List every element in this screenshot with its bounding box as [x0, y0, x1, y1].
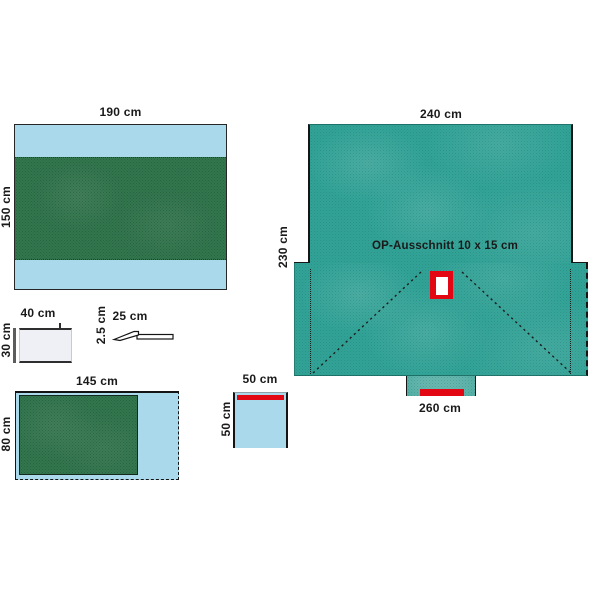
drape-set-diagram: 190 cm 150 cm 40 cm 30 cm 25 cm 2.5 cm 1… — [0, 0, 600, 600]
large-drape-bottom-tab — [406, 376, 476, 396]
fenestration — [430, 271, 453, 299]
cutout-label: OP-Ausschnitt 10 x 15 cm — [325, 239, 565, 253]
large-drape-step-edge-right — [572, 262, 588, 264]
drape-190-width-label: 190 cm — [14, 105, 227, 119]
large-drape-height-label: 230 cm — [276, 217, 290, 277]
drape-145 — [15, 391, 179, 480]
drape-145-reinforcement-zone — [19, 395, 138, 475]
pad-height-label: 30 cm — [0, 310, 13, 370]
small-drape-height-label: 50 cm — [219, 389, 233, 449]
fold-line-right — [570, 269, 571, 374]
absorbent-pad — [19, 328, 72, 363]
fold-line-left — [310, 269, 311, 374]
tape-body — [137, 335, 173, 340]
tape-height-label: 2.5 cm — [94, 295, 108, 355]
tape-folded-end — [114, 332, 139, 341]
fenestration-opening — [436, 277, 448, 295]
drape-145-width-label: 145 cm — [37, 374, 157, 388]
small-drape — [233, 392, 288, 448]
small-drape-adhesive-bar — [237, 395, 284, 400]
large-drape-step-edge-left — [294, 262, 309, 264]
tape-strip — [110, 326, 175, 343]
large-drape-width-label: 240 cm — [341, 107, 541, 121]
pad-dimension-bar — [13, 328, 16, 363]
drape-190 — [14, 124, 227, 290]
pad-width-label: 40 cm — [8, 306, 68, 320]
pad-tick-mark — [59, 323, 61, 329]
tape-width-label: 25 cm — [100, 309, 160, 323]
drape-145-height-label: 80 cm — [0, 404, 13, 464]
bottom-tab-adhesive-bar — [420, 389, 464, 396]
large-drape-bottom-width-label: 260 cm — [390, 401, 490, 415]
drape-190-height-label: 150 cm — [0, 177, 13, 237]
drape-190-reinforcement-zone — [15, 157, 226, 260]
